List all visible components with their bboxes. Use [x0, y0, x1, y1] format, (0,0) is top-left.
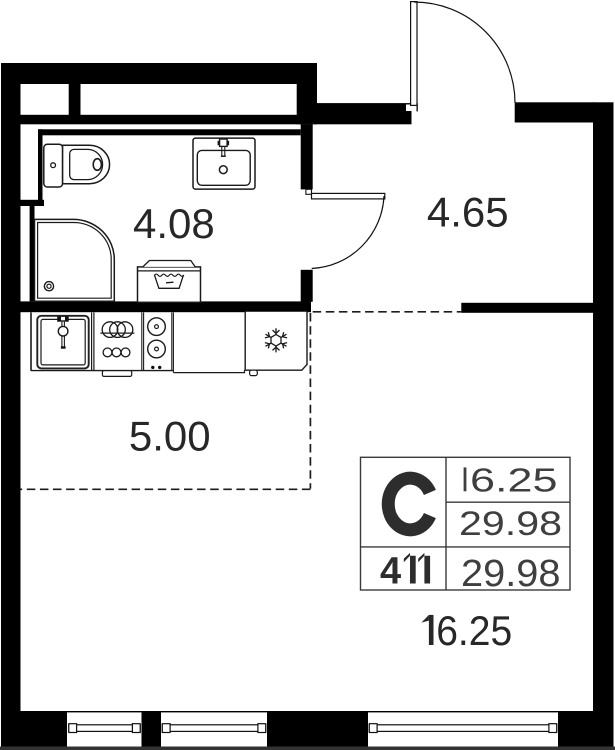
svg-text:29.98: 29.98 — [461, 553, 561, 595]
svg-text:4: 4 — [380, 551, 401, 593]
svg-text:5.00: 5.00 — [129, 413, 211, 460]
svg-text:6.25: 6.25 — [436, 607, 512, 654]
svg-text:6.25: 6.25 — [470, 461, 558, 498]
svg-text:29.98: 29.98 — [459, 505, 562, 543]
svg-text:4.65: 4.65 — [427, 189, 509, 236]
svg-text:4.08: 4.08 — [133, 200, 215, 247]
